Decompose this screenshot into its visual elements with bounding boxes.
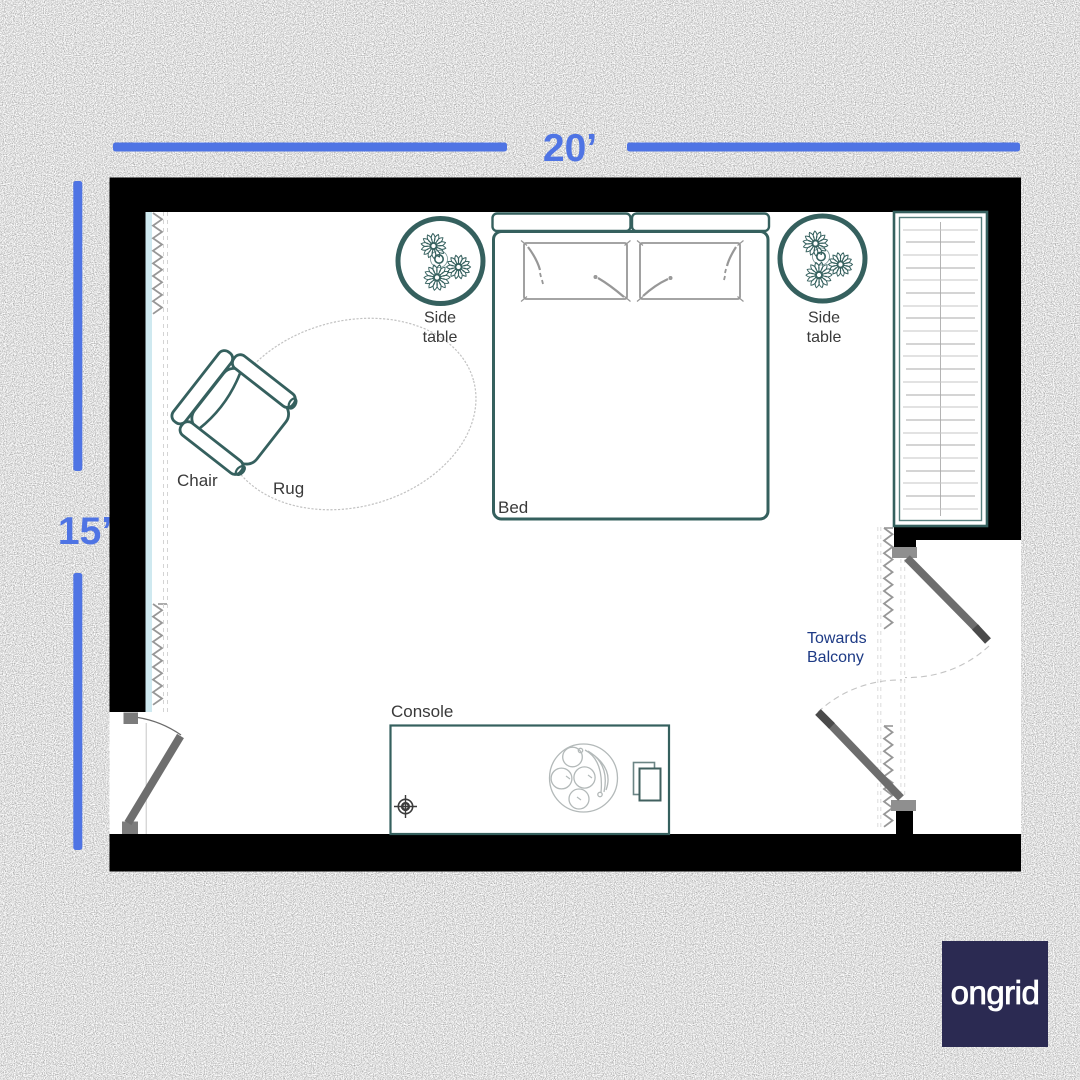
svg-text:Rug: Rug [273,479,304,498]
svg-text:Side: Side [808,310,840,327]
svg-text:20’: 20’ [543,127,597,170]
svg-text:Balcony: Balcony [807,649,864,666]
svg-text:ongrid: ongrid [951,974,1040,1011]
svg-text:Side: Side [424,310,456,327]
svg-text:15’: 15’ [58,510,112,553]
svg-text:Bed: Bed [498,498,528,517]
svg-text:Console: Console [391,702,453,721]
svg-text:Chair: Chair [177,471,218,490]
svg-text:table: table [423,329,458,346]
svg-text:Towards: Towards [807,630,867,647]
svg-text:table: table [807,329,842,346]
